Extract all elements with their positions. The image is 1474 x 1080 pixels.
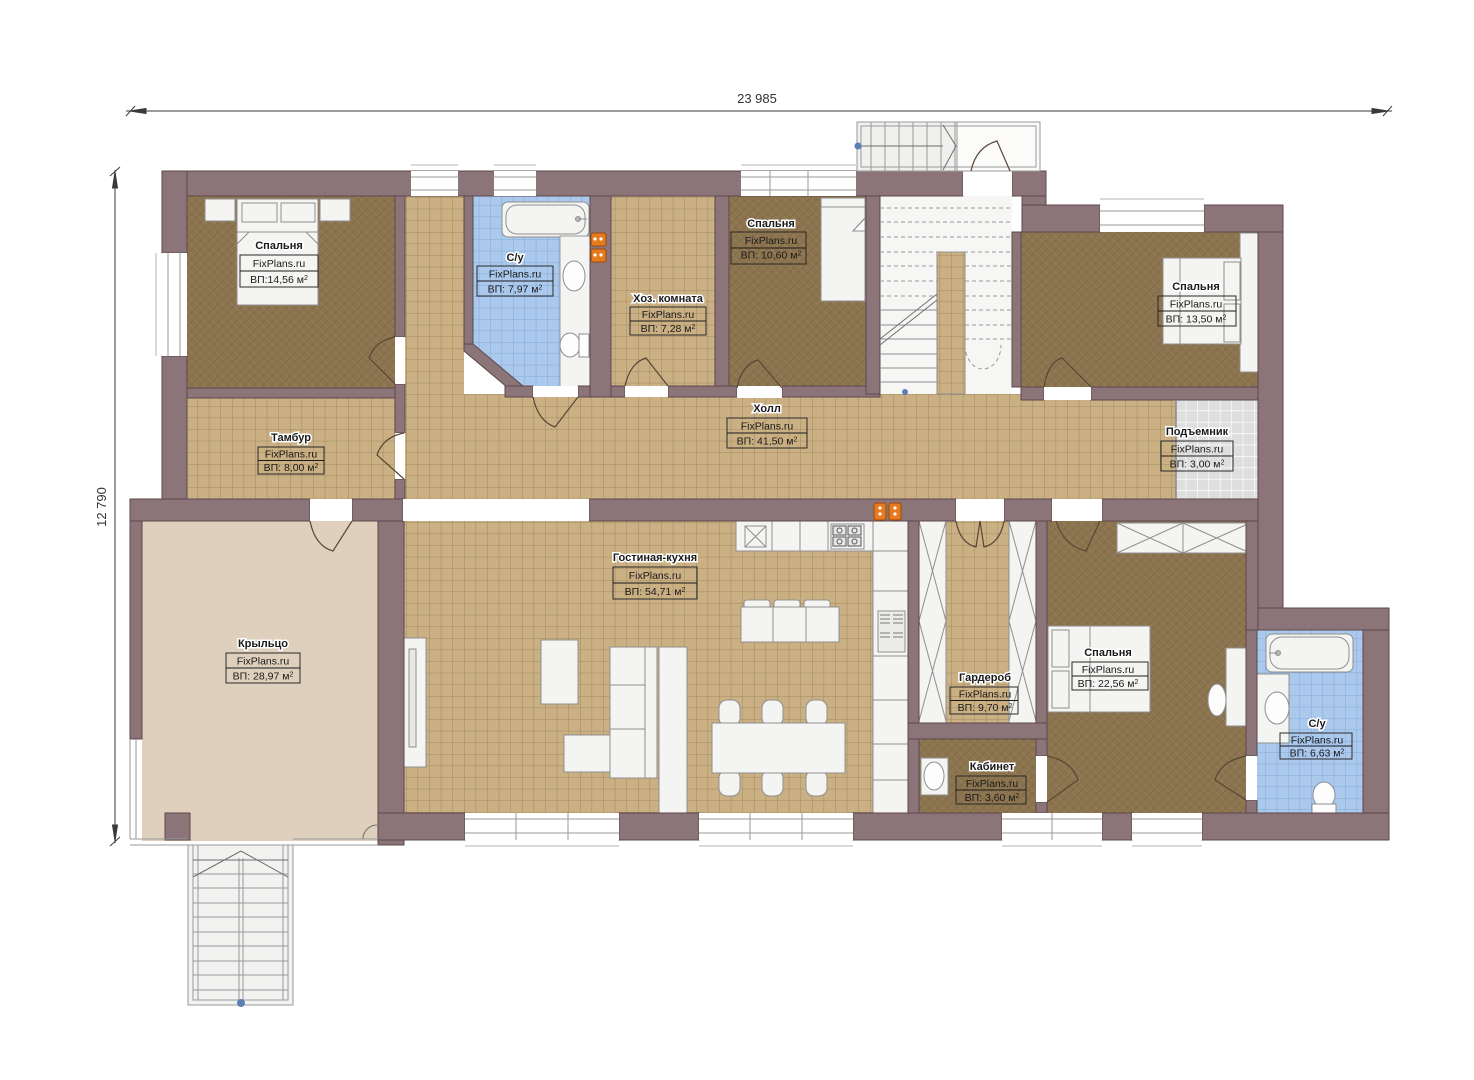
svg-text:FixPlans.ru: FixPlans.ru — [1171, 443, 1224, 455]
svg-text:FixPlans.ru: FixPlans.ru — [1291, 734, 1344, 746]
svg-text:FixPlans.ru: FixPlans.ru — [745, 235, 798, 247]
svg-text:ВП: 8,00 м2: ВП: 8,00 м2 — [264, 462, 319, 474]
svg-text:Спальня: Спальня — [255, 240, 303, 252]
svg-text:FixPlans.ru: FixPlans.ru — [1170, 298, 1223, 310]
svg-text:ВП: 54,71 м2: ВП: 54,71 м2 — [625, 586, 686, 598]
svg-text:Спальня: Спальня — [747, 218, 795, 230]
svg-text:ВП: 6,63 м2: ВП: 6,63 м2 — [1290, 747, 1345, 759]
svg-text:FixPlans.ru: FixPlans.ru — [966, 778, 1019, 790]
svg-text:Гардероб: Гардероб — [959, 672, 1011, 684]
svg-text:FixPlans.ru: FixPlans.ru — [959, 689, 1012, 701]
svg-text:ВП: 9,70 м2: ВП: 9,70 м2 — [958, 702, 1013, 714]
svg-text:ВП: 7,97 м2: ВП: 7,97 м2 — [488, 283, 543, 295]
svg-text:12 790: 12 790 — [94, 487, 109, 527]
svg-text:ВП: 22,56 м2: ВП: 22,56 м2 — [1078, 678, 1139, 690]
svg-text:Холл: Холл — [753, 403, 781, 415]
svg-text:С/у: С/у — [1308, 718, 1326, 730]
svg-text:FixPlans.ru: FixPlans.ru — [629, 570, 682, 582]
svg-text:Спальня: Спальня — [1172, 281, 1220, 293]
svg-text:Гостиная-кухня: Гостиная-кухня — [613, 552, 697, 564]
svg-text:ВП: 3,60 м2: ВП: 3,60 м2 — [965, 792, 1020, 804]
svg-text:FixPlans.ru: FixPlans.ru — [642, 309, 695, 321]
svg-text:ВП: 28,97 м2: ВП: 28,97 м2 — [233, 670, 294, 682]
svg-text:Кабинет: Кабинет — [970, 761, 1015, 773]
svg-text:FixPlans.ru: FixPlans.ru — [1082, 664, 1135, 676]
svg-text:FixPlans.ru: FixPlans.ru — [253, 258, 306, 270]
svg-text:Спальня: Спальня — [1084, 647, 1132, 659]
svg-text:ВП: 41,50 м2: ВП: 41,50 м2 — [737, 435, 798, 447]
svg-text:ВП: 13,50 м2: ВП: 13,50 м2 — [1166, 313, 1227, 325]
svg-text:ВП: 3,00 м2: ВП: 3,00 м2 — [1170, 458, 1225, 470]
svg-text:ВП: 7,28 м2: ВП: 7,28 м2 — [641, 323, 696, 335]
svg-text:С/у: С/у — [506, 252, 524, 264]
svg-text:ВП:14,56 м2: ВП:14,56 м2 — [250, 274, 308, 286]
svg-text:FixPlans.ru: FixPlans.ru — [741, 420, 794, 432]
svg-text:FixPlans.ru: FixPlans.ru — [237, 655, 290, 667]
svg-text:Подъемник: Подъемник — [1166, 426, 1229, 438]
svg-text:ВП: 10,60 м2: ВП: 10,60 м2 — [741, 250, 802, 262]
svg-text:Тамбур: Тамбур — [271, 432, 311, 444]
svg-text:Крыльцо: Крыльцо — [238, 638, 288, 650]
svg-text:FixPlans.ru: FixPlans.ru — [489, 268, 542, 280]
svg-text:FixPlans.ru: FixPlans.ru — [265, 449, 318, 461]
svg-text:23 985: 23 985 — [737, 91, 777, 106]
svg-text:Хоз. комната: Хоз. комната — [633, 293, 704, 305]
